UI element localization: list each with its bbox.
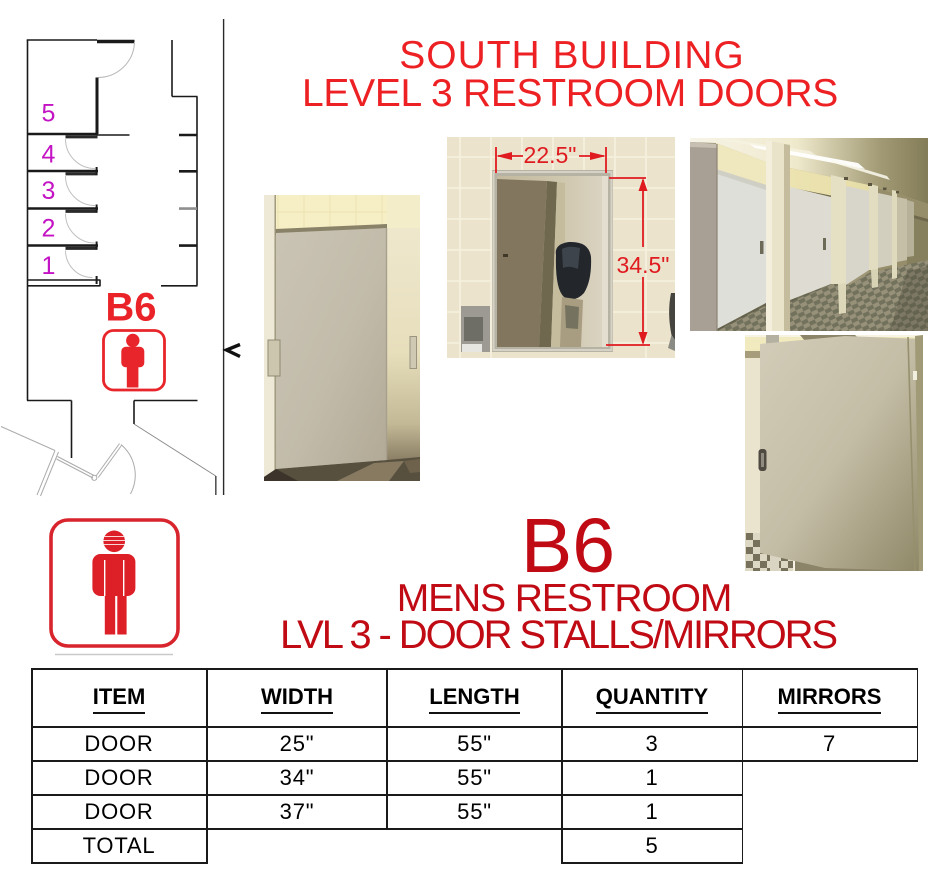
svg-text:4: 4: [42, 141, 56, 169]
svg-text:B6: B6: [105, 286, 156, 330]
svg-text:22.5": 22.5": [524, 142, 577, 168]
svg-text:5: 5: [42, 100, 56, 128]
svg-text:34.5": 34.5": [617, 252, 670, 278]
svg-text:2: 2: [42, 215, 56, 243]
svg-text:3: 3: [42, 177, 56, 205]
svg-text:1: 1: [42, 252, 56, 280]
